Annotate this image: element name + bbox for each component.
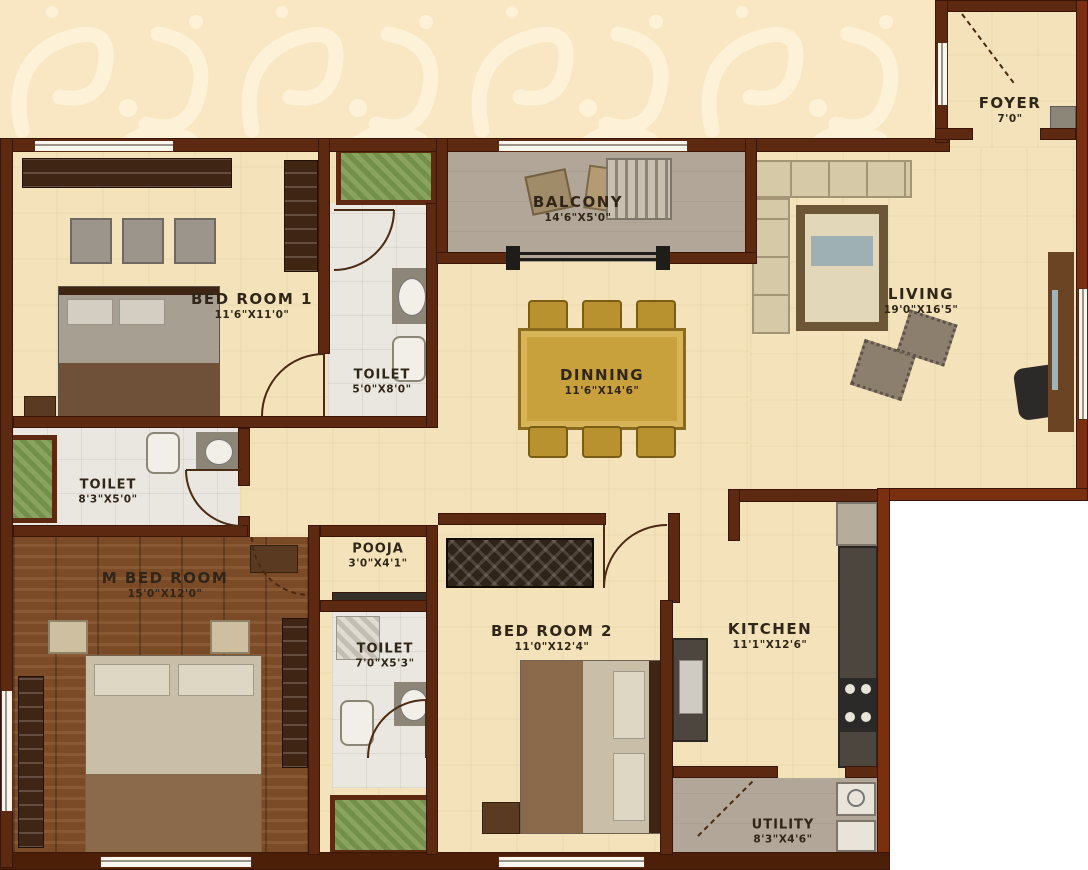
room-label-toilet2: TOILET 8'3"X5'0"	[78, 477, 137, 506]
room-name: BALCONY	[533, 193, 623, 212]
room-name: TOILET	[78, 477, 137, 493]
room-name: TOILET	[355, 641, 414, 657]
room-label-bedroom2: BED ROOM 2 11'0"X12'4"	[491, 622, 613, 654]
room-dimension: 7'0"X5'3"	[355, 658, 414, 671]
room-name: UTILITY	[752, 817, 815, 833]
room-dimension: 7'0"	[979, 113, 1042, 126]
room-label-utility: UTILITY 8'3"X4'6"	[752, 817, 815, 846]
room-dimension: 8'3"X4'6"	[752, 834, 815, 847]
room-label-living: LIVING 19'0"X16'5"	[884, 285, 959, 317]
room-label-toilet3: TOILET 7'0"X5'3"	[355, 641, 414, 670]
room-label-dinning: DINNING 11'6"X14'6"	[560, 366, 644, 398]
room-dimension: 11'6"X14'6"	[560, 385, 644, 398]
room-name: TOILET	[352, 367, 411, 383]
room-name: POOJA	[348, 541, 407, 557]
room-dimension: 11'1"X12'6"	[728, 639, 812, 652]
room-label-balcony: BALCONY 14'6"X5'0"	[533, 193, 623, 225]
room-dimension: 8'3"X5'0"	[78, 494, 137, 507]
room-name: BED ROOM 1	[191, 290, 313, 309]
room-label-mbedroom: M BED ROOM 15'0"X12'0"	[102, 569, 228, 601]
room-name: LIVING	[884, 285, 959, 304]
room-label-toilet1: TOILET 5'0"X8'0"	[352, 367, 411, 396]
door-swing-overlay	[0, 0, 1088, 870]
room-name: BED ROOM 2	[491, 622, 613, 641]
room-dimension: 11'0"X12'4"	[491, 641, 613, 654]
room-dimension: 14'6"X5'0"	[533, 212, 623, 225]
room-label-pooja: POOJA 3'0"X4'1"	[348, 541, 407, 570]
room-name: M BED ROOM	[102, 569, 228, 588]
room-dimension: 15'0"X12'0"	[102, 588, 228, 601]
room-dimension: 19'0"X16'5"	[884, 304, 959, 317]
room-label-bedroom1: BED ROOM 1 11'6"X11'0"	[191, 290, 313, 322]
room-dimension: 5'0"X8'0"	[352, 384, 411, 397]
room-name: KITCHEN	[728, 620, 812, 639]
floor-plan: BED ROOM 1 11'6"X11'0" TOILET 5'0"X8'0" …	[0, 0, 1088, 870]
room-dimension: 3'0"X4'1"	[348, 558, 407, 571]
room-label-foyer: FOYER 7'0"	[979, 94, 1042, 126]
room-label-kitchen: KITCHEN 11'1"X12'6"	[728, 620, 812, 652]
room-name: FOYER	[979, 94, 1042, 113]
room-dimension: 11'6"X11'0"	[191, 309, 313, 322]
room-name: DINNING	[560, 366, 644, 385]
